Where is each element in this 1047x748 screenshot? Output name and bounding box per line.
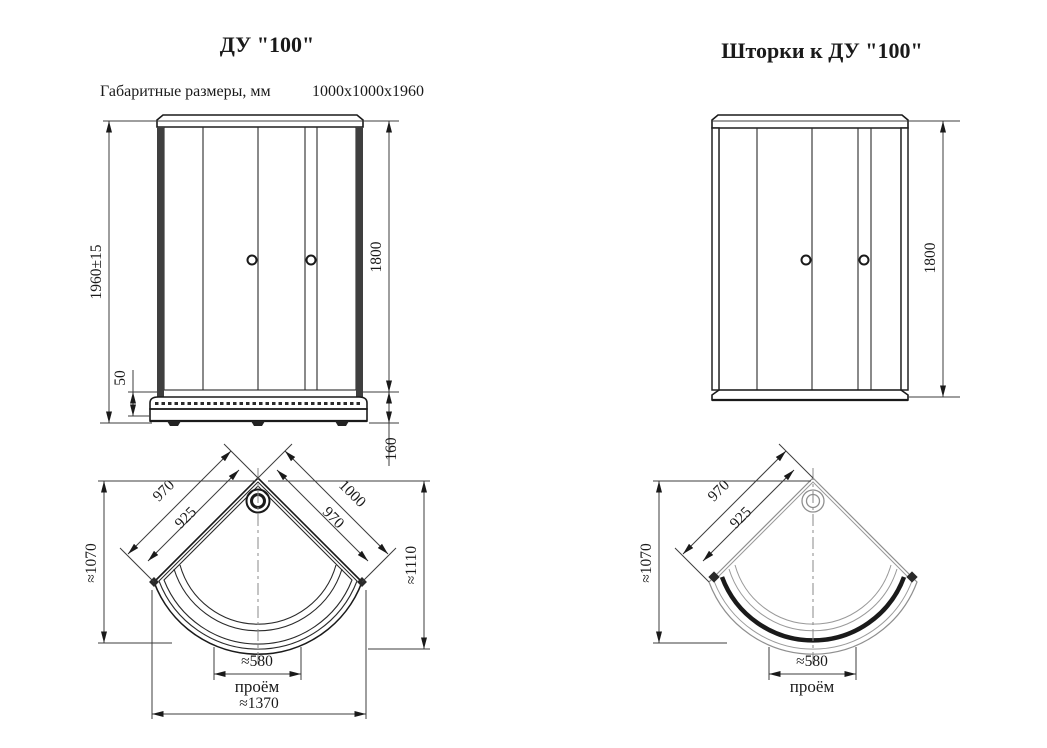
technical-drawing-page: ДУ "100" Габаритные размеры, мм 1000x100… [0,0,1047,748]
dim-label: ≈1070 [83,543,100,583]
dim-label: ≈1070 [638,543,655,583]
door-handle-icon [307,256,316,265]
dim-opening-width: ≈580 проём [214,647,301,696]
dimension-line [285,451,388,554]
cabin-right-wall-profile [356,127,363,397]
curtain-bottom-rail [712,390,908,400]
left-title: ДУ "100" [220,32,314,57]
dim-back-edge-outer-right: 1000 [285,451,388,554]
dim-back-edge-outer-left: 970 [128,451,231,554]
extension-line [120,548,154,582]
curtain-left-wall-profile [712,128,719,390]
tray-foot [251,421,265,426]
extension-line [258,444,292,478]
dim-label: ≈580 [241,653,273,670]
right-plan-view: 970 925 ≈1070 ≈580 проём [638,444,918,696]
left-plan-view: 970 925 1000 970 ≈1070 [83,444,430,719]
door-handle-icon [248,256,257,265]
curtain-right-wall-profile [901,128,908,390]
opening-label: проём [790,677,835,696]
dim-label: 970 [319,504,348,533]
tray-foot [167,421,181,426]
left-subtitle-value: 1000x1000x1960 [312,83,424,100]
dim-label: 1960±15 [88,244,105,299]
right-title: Шторки к ДУ "100" [721,38,922,63]
glass-area [164,127,356,390]
dim-label: ≈580 [796,653,828,670]
tray-lower-band [150,409,367,421]
door-handle-icon [860,256,869,265]
dim-label: 925 [172,503,201,532]
right-drawing: Шторки к ДУ "100" 1800 [638,38,960,696]
extension-line [779,444,813,478]
dim-opening-width: ≈580 проём [769,647,856,696]
dim-label: 1800 [368,241,385,272]
extension-line [224,444,258,478]
left-drawing: ДУ "100" Габаритные размеры, мм 1000x100… [83,32,430,719]
drawing-canvas: ДУ "100" Габаритные размеры, мм 1000x100… [0,0,1047,748]
dim-label: 1800 [922,242,939,273]
left-front-view: 1960±15 50 1800 160 [88,115,400,466]
dim-door-height: 1800 [908,121,960,397]
opening-label: проём [235,677,280,696]
dimension-line [683,451,786,554]
extension-line [362,548,396,582]
dim-label: ≈1370 [239,695,279,712]
tray-foot [335,421,349,426]
dim-label: 925 [727,503,756,532]
right-front-view: 1800 [712,115,960,400]
door-handle-icon [802,256,811,265]
dim-label: 160 [383,437,400,461]
left-subtitle-label: Габаритные размеры, мм [100,83,271,100]
dimension-line [128,451,231,554]
dim-label: 50 [112,370,129,386]
dim-back-edge-outer-left: 970 [683,451,786,554]
dim-label: ≈1110 [403,546,420,585]
cabin-left-wall-profile [157,127,164,397]
dim-door-height: 1800 [360,121,399,392]
extension-line [675,548,709,582]
dim-tray-height: 160 [369,392,400,466]
